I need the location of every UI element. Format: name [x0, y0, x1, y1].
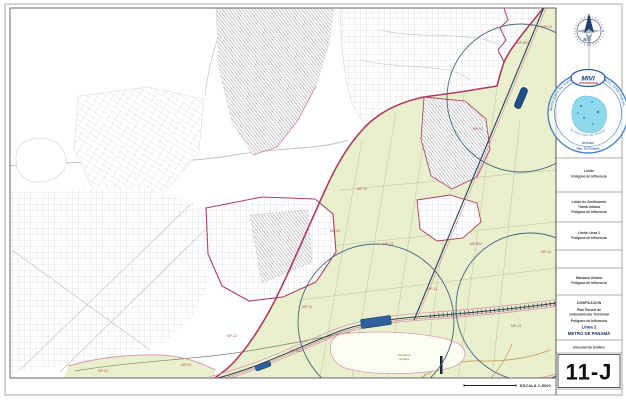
- legend-item-label: Límite: [584, 169, 594, 173]
- note-label-line2: Jurídica: [399, 357, 410, 361]
- legend-item-label: Polígono de Influencia: [571, 281, 606, 285]
- stamp-center-blob: [572, 96, 607, 133]
- legend-item-label: Polígono de Influencia: [571, 210, 606, 214]
- map-canvas: MP-02MP-03MP-12MP-B02MP-12MP-12MP-02MP-1…: [8, 0, 604, 400]
- right-panel: N MINISTERIO DE VIVIENDA Y ORDENAMIENTO …: [548, 8, 626, 395]
- title-line-linea2: Línea 2: [582, 325, 597, 330]
- mivi-logo-text: MIVI: [581, 76, 595, 83]
- zone-label: MP-13: [511, 324, 521, 328]
- legend-item-label: Polígono de Influencia: [571, 236, 606, 240]
- zone-label: MP-B03: [517, 41, 529, 45]
- legend-item-label: Límite Línea 2: [578, 231, 600, 235]
- zone-label: MP-B02: [470, 242, 482, 246]
- zone-label: MP-13: [541, 250, 551, 254]
- title-block: ZONIFICACIÓN Plan Parcial de Ordenamient…: [568, 300, 610, 336]
- zone-label: MP-12: [227, 334, 237, 338]
- north-arrow-icon: N: [575, 13, 603, 72]
- legend-item-label: Límite de Zonificación: [572, 200, 607, 204]
- zone-label: MP-02: [330, 229, 340, 233]
- zone-label: MP-B02: [290, 349, 302, 353]
- stamp-country-text: Rep. De Panamá: [577, 147, 600, 151]
- zone-label: MP-12: [357, 187, 367, 191]
- stamp-office-text: OFICINA: [582, 141, 595, 145]
- zone-label: MP-12: [302, 305, 312, 309]
- title-line: Ordenamiento Territorial: [569, 313, 609, 317]
- legend-item-label: Trama Urbana: [578, 205, 600, 209]
- title-line: Plan Parcial de: [577, 308, 601, 312]
- zone-label: MP-13: [383, 242, 393, 246]
- organic-blob: [16, 138, 66, 182]
- zone-label: MP-02: [473, 127, 483, 131]
- sheet-number: 11-J: [566, 360, 613, 385]
- zone-label: MP-02: [98, 369, 108, 373]
- title-heading: ZONIFICACIÓN: [577, 300, 602, 305]
- legend-item-label: Polígono de Influencia: [571, 175, 606, 179]
- map-sheet-svg: MP-02MP-03MP-12MP-B02MP-12MP-12MP-02MP-1…: [0, 0, 626, 400]
- legend-item-label: Manzana Urbana: [576, 276, 602, 280]
- legend: Límite Polígono de Influencia Límite de …: [571, 169, 606, 285]
- north-label: N: [583, 37, 586, 42]
- title-line-metro: METRO DE PANAMÁ: [568, 331, 610, 336]
- zone-label: MP-03: [542, 25, 552, 29]
- zone-label: MP-13: [427, 287, 437, 291]
- document-type-label: Documento Gráfico: [573, 346, 604, 350]
- mivi-stamp: MINISTERIO DE VIVIENDA Y ORDENAMIENTO TE…: [548, 70, 626, 154]
- scale-bar: ESCALA 1:5000: [464, 384, 551, 388]
- scale-label: ESCALA 1:5000: [520, 384, 551, 388]
- map-sheet-page: MP-02MP-03MP-12MP-B02MP-12MP-12MP-02MP-1…: [0, 0, 626, 400]
- title-line: Polígono de Influencia: [571, 319, 607, 323]
- zone-label: MP-03: [181, 363, 191, 367]
